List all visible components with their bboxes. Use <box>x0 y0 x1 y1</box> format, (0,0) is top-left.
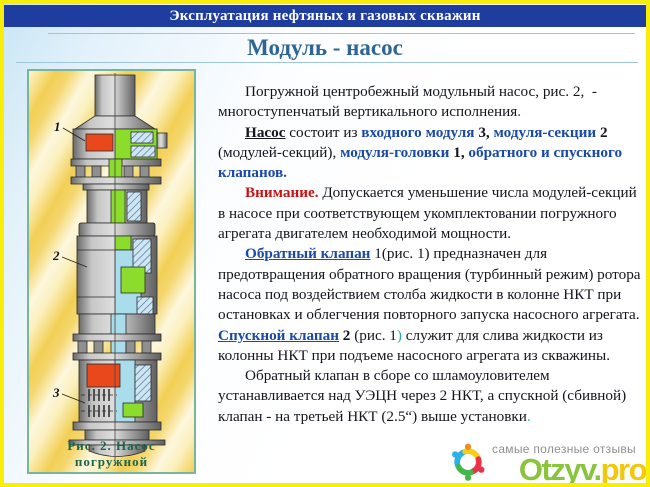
otzyv-logo[interactable]: самые полезные отзывы Otzyv.pro <box>441 440 646 483</box>
figure-label-2: 2 <box>52 248 60 263</box>
header-title: Эксплуатация нефтяных и газовых скважин <box>169 8 480 24</box>
text-segment: Внимание. <box>245 184 319 201</box>
text-segment: модуля-головки <box>340 144 453 161</box>
text-segment: состоит из <box>285 124 361 141</box>
text-segment: 3, <box>478 124 493 141</box>
text-segment: 2 <box>600 124 608 141</box>
pump-upper-flange <box>71 159 161 190</box>
pump-diagram-icon: 1 2 3 <box>29 71 194 471</box>
logo-text-block: самые полезные отзывы Otzyv.pro <box>492 442 646 482</box>
pump-figure: 1 2 3 Рис. 2. Насос погружной <box>27 69 196 474</box>
brand-green-part: Otzyv. <box>519 452 601 487</box>
text-segment: входного модуля <box>361 124 478 141</box>
text-segment: Спускной клапан <box>218 327 339 344</box>
body-text: Погружной центробежный модульный насос, … <box>218 82 642 427</box>
divider-bottom <box>16 62 638 63</box>
pump-neck <box>79 190 155 236</box>
divider-top <box>48 33 635 34</box>
text-segment: 1, <box>453 144 468 161</box>
paragraph-valves: Обратный клапан 1(рис. 1) предназначен д… <box>218 244 642 366</box>
text-segment: модуля-секции <box>494 124 600 141</box>
brand-wordmark: Otzyv.pro <box>519 457 646 482</box>
paragraph-attention: Внимание. Допускается уменьшение числа м… <box>218 183 642 244</box>
text-segment: . <box>517 103 521 120</box>
text-segment: Обратный клапан в сборе со шламоуловител… <box>218 367 630 425</box>
paragraph-intro: Погружной центробежный модульный насос, … <box>218 82 642 123</box>
text-segment: Погружной центробежный модульный насос, … <box>218 83 601 120</box>
pump-intake-module <box>79 360 157 422</box>
figure-label-1: 1 <box>54 119 61 134</box>
page-title: Модуль - насос <box>4 35 646 61</box>
figure-caption: Рис. 2. Насос погружной <box>29 438 194 470</box>
brand-yellow-part: pro <box>601 452 646 487</box>
text-segment: Обратный клапан <box>245 245 370 262</box>
text-segment: . <box>527 408 531 425</box>
people-pinwheel-icon <box>449 443 487 481</box>
header-bar: Эксплуатация нефтяных и газовых скважин <box>4 5 646 27</box>
pump-section-module <box>73 236 161 360</box>
text-segment: (рис. 1 <box>350 327 397 344</box>
text-segment: Насос <box>245 124 285 141</box>
slide-root: Эксплуатация нефтяных и газовых скважин … <box>0 0 650 487</box>
paragraph-composition: Насос состоит из входного модуля 3, моду… <box>218 123 642 184</box>
paragraph-install: Обратный клапан в сборе со шламоуловител… <box>218 366 642 427</box>
pump-head-module <box>73 75 167 159</box>
figure-label-3: 3 <box>52 385 60 400</box>
